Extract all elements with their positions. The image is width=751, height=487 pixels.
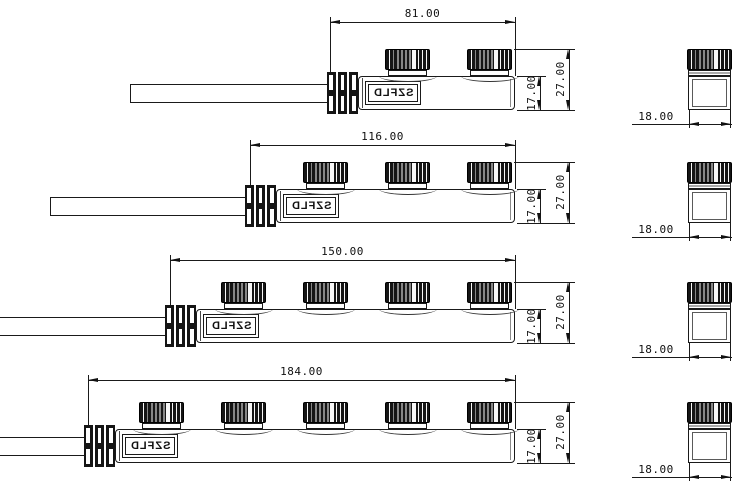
knurled-nut-icon — [385, 49, 430, 70]
knurled-nut-icon — [385, 162, 430, 183]
knurled-nut-icon — [221, 402, 266, 423]
connector-port — [297, 162, 355, 195]
dimension-arrow — [689, 355, 699, 359]
port-flange — [306, 183, 345, 189]
dimension-arrow — [505, 378, 515, 382]
end-view-knurled-nut — [687, 402, 732, 423]
connector-port — [461, 282, 519, 315]
port-boss-arc — [297, 429, 355, 435]
port-flange — [306, 303, 345, 309]
end-view-knurled-nut — [687, 162, 732, 183]
length-dimension-text: 150.00 — [170, 245, 515, 258]
total-height-dimension-text: 27.00 — [554, 57, 566, 101]
ports-row — [0, 162, 751, 195]
cable — [130, 84, 328, 103]
dimension-line — [250, 145, 515, 146]
port-flange — [388, 70, 427, 76]
length-dimension-text: 184.00 — [88, 365, 515, 378]
dimension-arrow — [330, 20, 340, 24]
end-view-body — [688, 429, 731, 463]
knurled-nut-icon — [467, 162, 512, 183]
dimension-arrow — [721, 122, 731, 126]
cable — [50, 197, 246, 216]
ports-row — [0, 282, 751, 315]
brand-text-mirrored: SZFLD — [211, 320, 251, 332]
dimension-line — [632, 357, 732, 358]
connector-port — [133, 402, 191, 435]
dimension-arrow — [566, 213, 570, 223]
connector-port — [379, 162, 437, 195]
port-flange — [224, 423, 263, 429]
connector-port — [297, 282, 355, 315]
port-flange — [470, 423, 509, 429]
port-boss-arc — [461, 189, 519, 195]
dimension-arrow — [566, 100, 570, 110]
port-flange — [224, 303, 263, 309]
end-width-dimension-text: 18.00 — [628, 223, 684, 236]
knurled-nut-icon — [385, 282, 430, 303]
port-boss-arc — [461, 76, 519, 82]
connector-port — [461, 49, 519, 82]
dimension-arrow — [505, 258, 515, 262]
dimension-arrow — [566, 453, 570, 463]
port-boss-arc — [461, 309, 519, 315]
end-view-body — [688, 309, 731, 343]
dimension-arrow — [537, 309, 541, 319]
connector-port — [379, 49, 437, 82]
dimension-arrow — [88, 378, 98, 382]
total-height-dimension-text: 27.00 — [554, 170, 566, 214]
brand-text-mirrored: SZFLD — [291, 200, 331, 212]
total-height-dimension-text: 27.00 — [554, 410, 566, 454]
body-height-dimension-text: 17.00 — [525, 306, 537, 346]
dimension-arrow — [170, 258, 180, 262]
dimension-arrow — [250, 143, 260, 147]
dimension-line — [170, 260, 515, 261]
port-boss-arc — [379, 429, 437, 435]
connector-port — [215, 402, 273, 435]
end-view-knurled-nut — [687, 49, 732, 70]
dimension-arrow — [566, 402, 570, 412]
dimension-line — [632, 237, 732, 238]
port-flange — [388, 423, 427, 429]
dimension-arrow — [566, 162, 570, 172]
port-boss-arc — [379, 309, 437, 315]
port-boss-arc — [297, 309, 355, 315]
knurled-nut-icon — [467, 282, 512, 303]
port-boss-arc — [461, 429, 519, 435]
total-height-dimension-text: 27.00 — [554, 290, 566, 334]
knurled-nut-icon — [303, 402, 348, 423]
cable — [0, 317, 166, 336]
dimension-line — [632, 124, 732, 125]
dimension-arrow — [537, 100, 541, 110]
ports-row — [0, 402, 751, 435]
knurled-nut-icon — [139, 402, 184, 423]
dimension-arrow — [721, 235, 731, 239]
connector-port — [379, 402, 437, 435]
ports-row — [0, 49, 751, 82]
dimension-arrow — [537, 76, 541, 86]
knurled-nut-icon — [303, 282, 348, 303]
body-height-dimension-text: 17.00 — [525, 73, 537, 113]
end-view-body — [688, 76, 731, 110]
end-width-dimension-text: 18.00 — [628, 463, 684, 476]
body-height-dimension-text: 17.00 — [525, 186, 537, 226]
dimension-line — [88, 380, 515, 381]
dimension-arrow — [505, 20, 515, 24]
end-view-body — [688, 189, 731, 223]
cable — [0, 437, 85, 456]
port-boss-arc — [133, 429, 191, 435]
end-width-dimension-text: 18.00 — [628, 110, 684, 123]
knurled-nut-icon — [385, 402, 430, 423]
dimension-arrow — [537, 333, 541, 343]
port-flange — [388, 303, 427, 309]
connector-port — [461, 402, 519, 435]
length-dimension-text: 116.00 — [250, 130, 515, 143]
brand-plate: SZFLD — [203, 314, 259, 338]
connector-port — [461, 162, 519, 195]
dimension-arrow — [566, 49, 570, 59]
knurled-nut-icon — [467, 402, 512, 423]
knurled-nut-icon — [221, 282, 266, 303]
technical-drawing-canvas: 81.00 SZFLD 17.00 27.00 — [0, 0, 751, 487]
port-flange — [470, 303, 509, 309]
port-boss-arc — [297, 189, 355, 195]
connector-port — [297, 402, 355, 435]
dimension-arrow — [721, 355, 731, 359]
connector-port — [379, 282, 437, 315]
knurled-nut-icon — [467, 49, 512, 70]
brand-plate: SZFLD — [122, 434, 178, 458]
port-boss-arc — [379, 76, 437, 82]
dimension-arrow — [566, 282, 570, 292]
dimension-arrow — [537, 429, 541, 439]
port-flange — [306, 423, 345, 429]
body-height-dimension-text: 17.00 — [525, 426, 537, 466]
dimension-arrow — [566, 333, 570, 343]
dimension-arrow — [537, 453, 541, 463]
brand-text-mirrored: SZFLD — [130, 440, 170, 452]
length-dimension-text: 81.00 — [330, 7, 515, 20]
dimension-arrow — [689, 122, 699, 126]
brand-plate: SZFLD — [365, 81, 421, 105]
port-flange — [470, 183, 509, 189]
connector-port — [215, 282, 273, 315]
end-view-knurled-nut — [687, 282, 732, 303]
dimension-arrow — [689, 475, 699, 479]
port-boss-arc — [215, 429, 273, 435]
port-flange — [388, 183, 427, 189]
port-flange — [470, 70, 509, 76]
end-width-dimension-text: 18.00 — [628, 343, 684, 356]
knurled-nut-icon — [303, 162, 348, 183]
port-boss-arc — [215, 309, 273, 315]
port-flange — [142, 423, 181, 429]
brand-text-mirrored: SZFLD — [373, 87, 413, 99]
brand-plate: SZFLD — [283, 194, 339, 218]
dimension-arrow — [505, 143, 515, 147]
dimension-line — [330, 22, 515, 23]
dimension-arrow — [689, 235, 699, 239]
port-boss-arc — [379, 189, 437, 195]
dimension-line — [632, 477, 732, 478]
dimension-arrow — [721, 475, 731, 479]
dimension-arrow — [537, 213, 541, 223]
dimension-arrow — [537, 189, 541, 199]
